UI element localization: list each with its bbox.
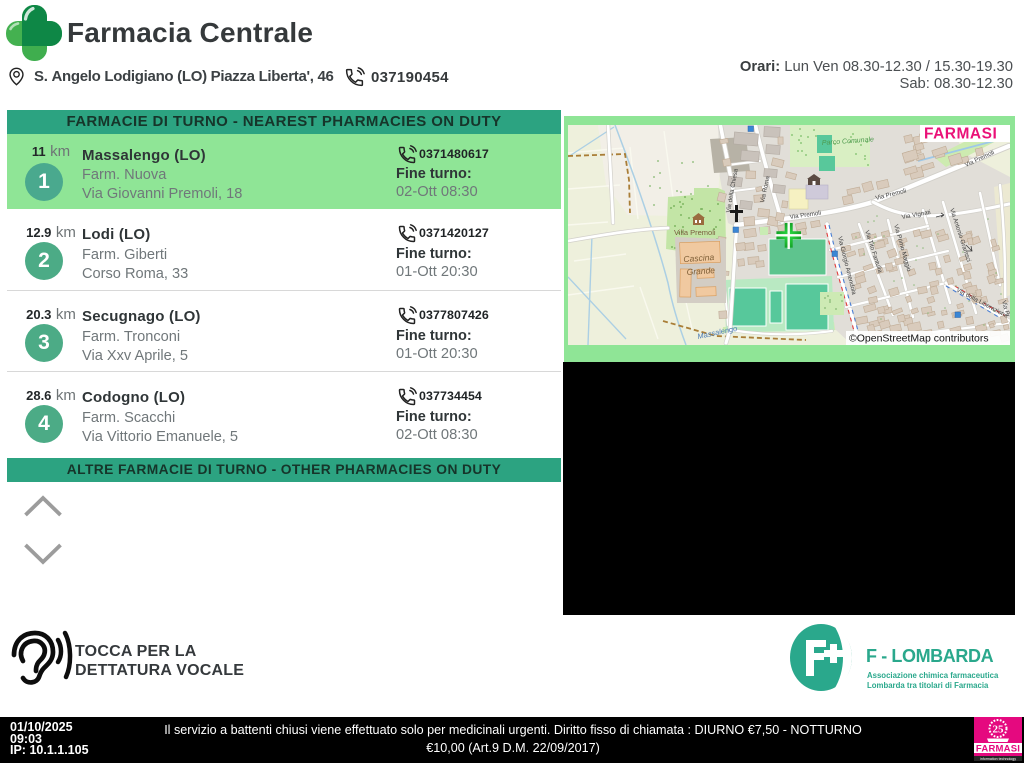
svg-text:FARMASI: FARMASI xyxy=(976,744,1020,755)
svg-text:©OpenStreetMap contributors: ©OpenStreetMap contributors xyxy=(849,333,989,345)
svg-text:Grande: Grande xyxy=(686,265,715,277)
svg-text:Villa Premoli: Villa Premoli xyxy=(674,228,716,237)
svg-text:FARMASI: FARMASI xyxy=(924,126,997,143)
svg-text:information technology: information technology xyxy=(980,757,1016,761)
svg-text:25: 25 xyxy=(993,724,1005,736)
